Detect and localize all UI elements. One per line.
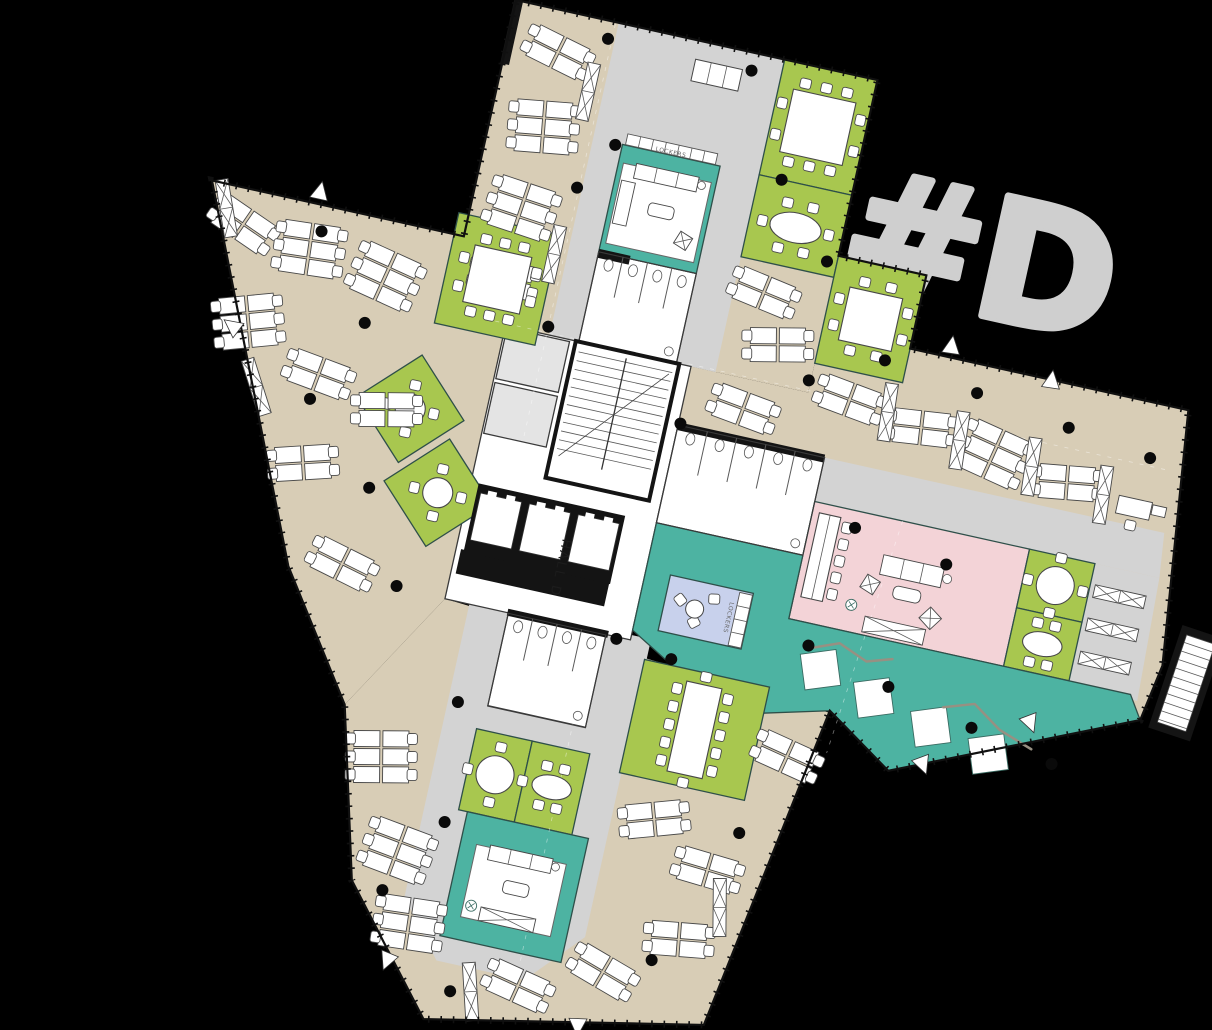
chair: [671, 682, 683, 695]
chair: [756, 214, 768, 227]
chair: [710, 747, 722, 760]
chair: [1055, 552, 1068, 564]
furniture-part: [650, 938, 677, 956]
furniture-part: [354, 748, 380, 764]
chair: [722, 693, 734, 706]
chair: [799, 78, 812, 90]
chair: [663, 718, 675, 731]
chair: [667, 700, 679, 713]
chair: [619, 825, 630, 837]
chair: [1022, 573, 1034, 586]
chair: [804, 349, 814, 360]
chair: [436, 463, 449, 475]
chair: [704, 945, 715, 957]
chair: [659, 736, 671, 749]
chair: [1049, 620, 1062, 632]
furniture-part: [388, 411, 414, 427]
chair: [567, 141, 578, 153]
chair: [1023, 656, 1036, 668]
furniture-part: [515, 117, 542, 135]
furniture-part: [779, 346, 805, 362]
terrace-planter: [800, 650, 840, 690]
chair: [464, 305, 477, 317]
chair: [843, 344, 856, 356]
chair: [413, 395, 423, 406]
chair: [426, 510, 439, 522]
chair: [833, 292, 845, 305]
furniture-part: [354, 766, 380, 782]
chair: [375, 895, 387, 907]
furniture-part: [463, 245, 532, 314]
storage-shelf: [713, 878, 727, 936]
furniture-part: [921, 429, 949, 448]
furniture-part: [383, 731, 409, 747]
chair: [329, 464, 340, 476]
chair: [782, 156, 795, 168]
screenshot-root: #DHALL DLOCKERSLOCKERS: [0, 0, 1212, 1030]
chair: [483, 796, 496, 808]
furniture-part: [276, 464, 303, 482]
chair: [643, 922, 654, 934]
chair: [797, 247, 810, 259]
chair: [807, 202, 820, 214]
furniture-part: [383, 767, 409, 783]
furniture-part: [544, 119, 571, 137]
chair: [334, 248, 346, 260]
chair: [212, 319, 223, 331]
chair: [1124, 519, 1137, 531]
chair: [530, 267, 542, 280]
furniture-part: [780, 89, 856, 165]
furniture-part: [654, 800, 681, 818]
chair: [833, 555, 845, 568]
chair: [436, 904, 448, 916]
chair: [480, 233, 493, 245]
furniture-part: [651, 920, 678, 938]
furniture-part: [627, 820, 654, 838]
furniture-part: [412, 898, 440, 918]
chair: [804, 331, 814, 342]
chair: [837, 538, 849, 551]
furniture-part: [1038, 481, 1065, 499]
furniture-part: [249, 311, 276, 329]
chair: [709, 594, 720, 604]
chair: [275, 331, 286, 343]
chair: [434, 922, 446, 934]
chair: [499, 237, 512, 249]
chair: [502, 314, 515, 326]
chair: [214, 337, 225, 349]
chair: [655, 754, 667, 767]
chair: [524, 295, 536, 308]
chair: [841, 87, 854, 99]
chair: [771, 241, 784, 253]
chair: [858, 276, 871, 288]
furniture-part: [310, 241, 338, 261]
chair: [516, 774, 528, 787]
furniture-part: [517, 99, 544, 117]
furniture-part: [625, 803, 652, 821]
furniture-part: [779, 328, 805, 344]
furniture-part: [305, 462, 332, 480]
chair: [408, 481, 420, 494]
furniture-part: [354, 730, 380, 746]
chair: [507, 119, 518, 131]
chair: [272, 295, 283, 307]
furniture-part: [750, 328, 776, 344]
furniture-part: [251, 329, 278, 347]
chair: [896, 334, 908, 347]
chair: [532, 799, 545, 811]
chair: [885, 282, 898, 294]
chair: [428, 408, 440, 421]
chair: [350, 413, 360, 424]
chair: [1031, 617, 1044, 629]
chair: [830, 571, 842, 584]
chair: [351, 395, 361, 406]
furniture-part: [546, 101, 573, 119]
chair: [337, 230, 349, 242]
chair: [495, 741, 508, 753]
furniture-part: [303, 444, 330, 462]
chair: [518, 242, 531, 254]
chair: [558, 764, 571, 776]
furniture-part: [1067, 484, 1094, 502]
chair: [506, 137, 517, 149]
chair: [827, 318, 839, 331]
chair: [509, 101, 520, 113]
furniture-part: [750, 346, 776, 362]
furniture-part: [406, 934, 434, 954]
furniture-part: [281, 237, 309, 257]
chair: [803, 160, 816, 172]
chair: [676, 777, 689, 789]
furniture-part: [656, 818, 683, 836]
chair: [617, 807, 628, 819]
furniture-part: [383, 749, 409, 765]
chair: [769, 128, 781, 141]
furniture-part: [284, 219, 312, 239]
chair: [409, 379, 422, 391]
furniture-part: [247, 293, 274, 311]
chair: [483, 310, 496, 322]
chair: [452, 279, 464, 292]
chair: [541, 760, 554, 772]
chair: [714, 729, 726, 742]
chair: [569, 123, 580, 135]
furniture-part: [680, 923, 707, 941]
furniture-part: [894, 408, 922, 427]
chair: [847, 145, 859, 158]
chair: [276, 221, 288, 233]
furniture-part: [380, 912, 408, 932]
chair: [902, 307, 914, 320]
furniture-part: [307, 259, 335, 279]
chair: [399, 426, 412, 438]
chair: [742, 330, 752, 341]
furniture-part: [543, 137, 570, 155]
chair: [824, 165, 837, 177]
chair: [407, 769, 417, 780]
chair: [550, 803, 563, 815]
chair: [455, 491, 467, 504]
floor-plan-svg: #DHALL DLOCKERSLOCKERS: [0, 0, 1212, 1030]
chair: [270, 256, 282, 268]
chair: [820, 82, 833, 94]
chair: [823, 229, 835, 242]
chair: [700, 671, 713, 683]
chair: [1043, 607, 1056, 619]
chair: [210, 301, 221, 313]
chair: [781, 197, 794, 209]
chair: [462, 762, 474, 775]
chair: [1077, 585, 1089, 598]
furniture-part: [800, 650, 840, 690]
furniture-part: [679, 941, 706, 959]
chair: [679, 801, 690, 813]
chair: [431, 940, 443, 952]
chair: [328, 446, 339, 458]
chair: [458, 251, 470, 264]
furniture-part: [514, 135, 541, 153]
chair: [826, 588, 838, 601]
terrace-planter: [911, 707, 951, 747]
floor-plan: #DHALL DLOCKERSLOCKERS: [0, 0, 1212, 1030]
chair: [706, 765, 718, 778]
furniture-part: [409, 916, 437, 936]
furniture-part: [275, 446, 302, 464]
furniture-part: [388, 393, 414, 409]
chair: [412, 413, 422, 424]
furniture-part: [923, 411, 951, 430]
furniture-part: [1068, 466, 1095, 484]
furniture-part: [911, 707, 951, 747]
chair: [1040, 660, 1053, 672]
chair: [776, 97, 788, 110]
chair: [642, 940, 653, 952]
furniture-part: [218, 296, 245, 314]
furniture-part: [892, 426, 920, 445]
chair: [718, 711, 730, 724]
chair: [407, 733, 417, 744]
furniture-part: [383, 894, 411, 914]
chair: [273, 238, 285, 250]
furniture-part: [359, 410, 385, 426]
furniture-part: [838, 287, 902, 351]
furniture-part: [359, 392, 385, 408]
furniture-part: [278, 255, 306, 275]
chair: [742, 348, 752, 359]
chair: [407, 751, 417, 762]
chair: [854, 114, 866, 127]
chair: [274, 313, 285, 325]
chair: [680, 819, 691, 831]
chair: [332, 265, 344, 277]
furniture-part: [1039, 464, 1066, 482]
